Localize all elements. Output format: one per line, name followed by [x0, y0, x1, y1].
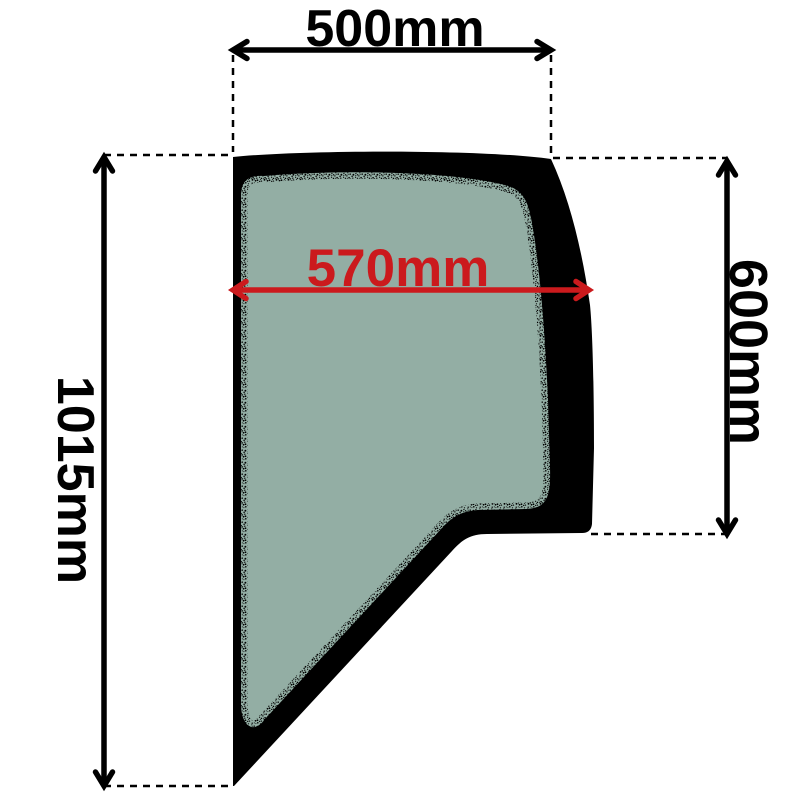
svg-text:570mm: 570mm: [307, 239, 490, 298]
svg-text:1015mm: 1015mm: [46, 376, 104, 584]
svg-text:600mm: 600mm: [718, 259, 778, 445]
svg-text:500mm: 500mm: [305, 0, 484, 58]
